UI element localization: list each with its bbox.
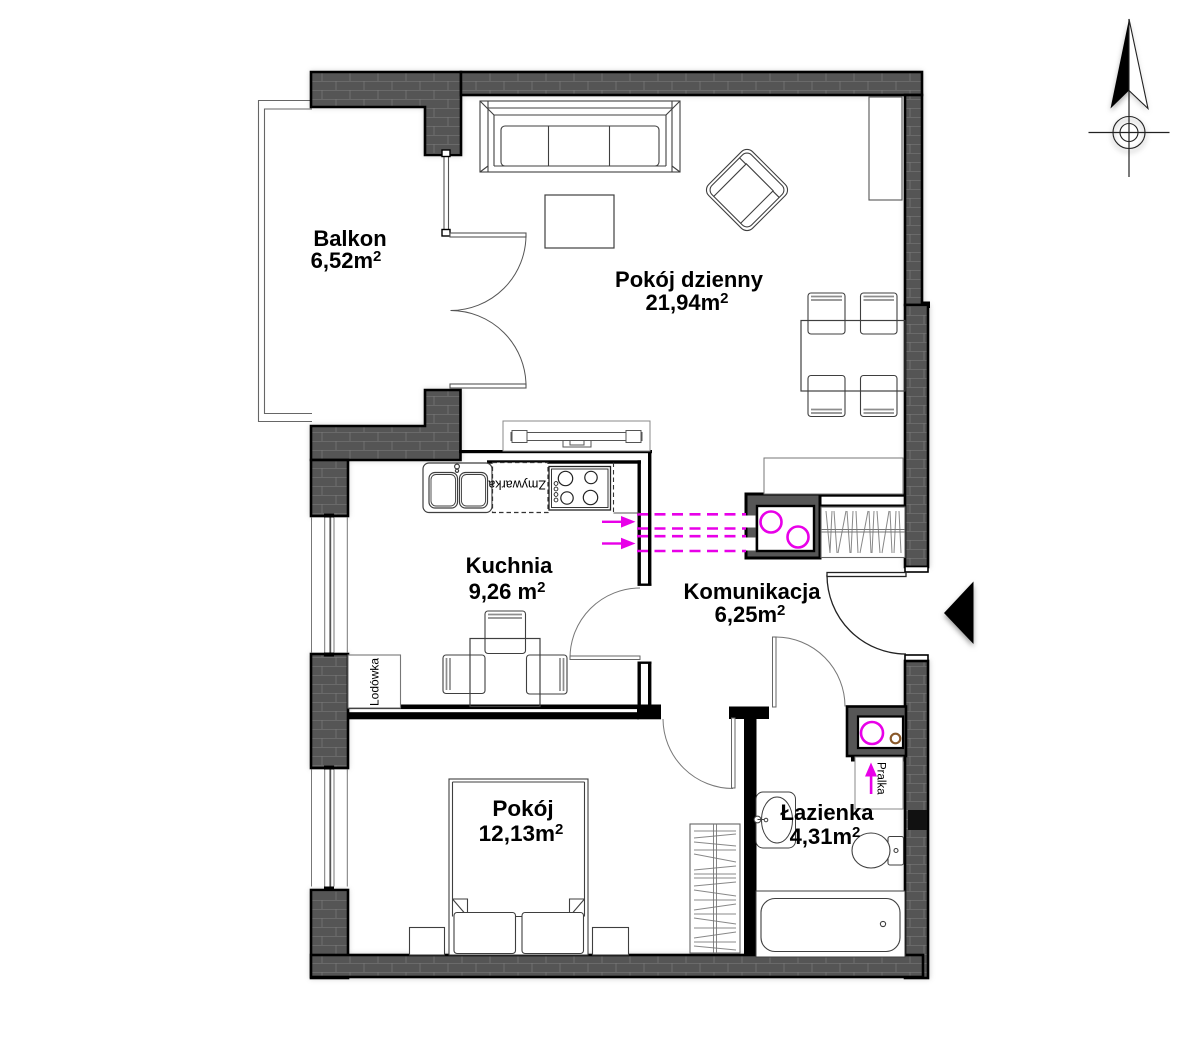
svg-text:4,31m2: 4,31m2 (790, 824, 861, 849)
svg-text:Kuchnia: Kuchnia (466, 553, 554, 578)
svg-text:12,13m2: 12,13m2 (479, 821, 564, 846)
svg-text:6,52m2: 6,52m2 (311, 248, 382, 273)
svg-text:Pokój: Pokój (492, 796, 553, 821)
svg-text:Komunikacja: Komunikacja (684, 579, 822, 604)
svg-text:Pokój dzienny: Pokój dzienny (615, 267, 764, 292)
svg-text:6,25m2: 6,25m2 (715, 602, 786, 627)
svg-text:Łazienka: Łazienka (781, 800, 875, 825)
svg-text:Zmywarka: Zmywarka (488, 478, 546, 492)
svg-text:Lodówka: Lodówka (368, 658, 382, 706)
svg-text:9,26 m2: 9,26 m2 (469, 579, 546, 604)
svg-text:21,94m2: 21,94m2 (646, 290, 729, 315)
svg-text:Pralka: Pralka (875, 762, 887, 795)
